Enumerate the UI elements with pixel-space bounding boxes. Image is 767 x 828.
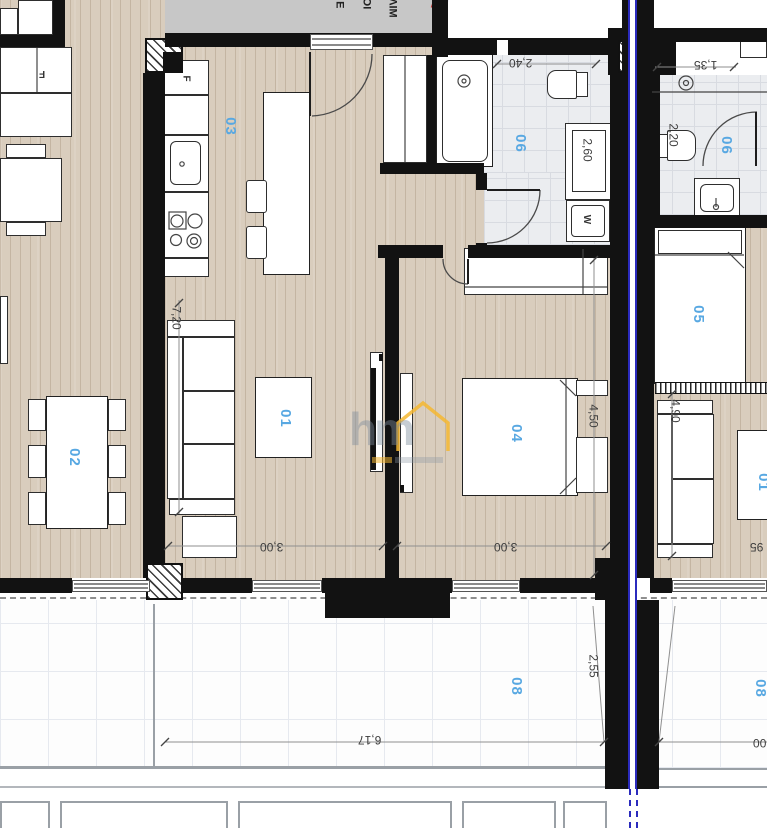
chair [28,399,46,431]
wall-hatched-band [655,382,767,394]
dresser [576,437,608,493]
balcony-edge-right-2 [659,786,767,788]
sofa-back [657,414,672,544]
sliding-door-handle [379,354,383,361]
sofa-seat [183,391,235,444]
table [0,158,62,222]
toilet-tank [576,72,588,97]
kitchen-counter [0,93,72,137]
bathtub-inner [442,60,488,162]
wall [610,38,622,578]
wall [476,173,487,190]
chair [28,445,46,478]
wall-bottom [650,578,672,593]
balcony-divider [153,604,155,767]
balcony-door-sill [252,580,322,592]
balcony-edge-2 [0,786,606,788]
wall [484,245,612,258]
sofa-seat [183,337,235,391]
chair [108,399,126,431]
column-hatched [146,563,183,600]
stairwell-line: ◄Ε [333,0,346,18]
cabinet [163,95,209,135]
structural-axis-dashed [629,789,631,828]
floor-plan: 01 02 03 04 05 06 06 08 08 01 7,20 2,40 … [0,0,767,828]
sofa-seat [183,444,235,499]
sofa-armrest [657,544,713,558]
window-sill [72,580,150,592]
balcony-door-sill [452,580,520,592]
wall [0,578,72,593]
watermark-tagline-accent [372,457,392,463]
wall [468,245,484,258]
cabinet [18,0,53,35]
chimney-box [325,585,450,618]
watermark-tagline [395,457,443,463]
chair [6,222,46,236]
stool [246,180,267,213]
closet [383,55,427,163]
sink-basin [700,184,734,212]
wall-top [165,33,448,47]
sliding-door-handle [400,485,404,492]
wall [380,163,484,174]
railing-panel [563,801,607,828]
window-sill [672,580,767,592]
chair [108,492,126,525]
wall [53,0,65,35]
railing-panel [0,801,50,828]
wall [648,73,660,225]
wall [378,245,443,258]
sofa-partial [0,296,8,364]
kitchen-sink-basin [170,141,201,185]
balcony-edge-right [659,768,767,770]
stairwell-line: ΚΛΙΜ [386,0,399,18]
wall [650,215,767,228]
stool [246,226,267,259]
chair [28,492,46,525]
wall [676,28,767,42]
sofa-seat [672,479,714,544]
wall [432,0,448,57]
pillow [658,230,742,254]
kitchen-island [263,92,310,275]
exterior-top-gap [448,0,610,38]
cabinet [163,258,209,277]
nightstand [576,380,608,396]
tv-cabinet [182,516,237,558]
railing-panel [60,801,228,828]
wall [0,35,65,47]
window-gap [497,40,508,55]
structural-axis-line [628,0,637,789]
stove [163,192,209,258]
railing-panel [462,801,556,828]
chair [6,144,46,158]
watermark-logo: hm [349,402,412,456]
stairwell-line: ΚΟΙ [359,0,372,18]
entrance-threshold [310,34,373,50]
cabinet [0,8,18,35]
balcony-edge [0,766,606,769]
chair [108,445,126,478]
party-wall-left [143,73,165,578]
sofa-armrest [657,400,713,414]
kitchen-counter [0,47,72,93]
sofa-back [167,337,183,499]
sofa-seat [672,414,714,479]
sofa-armrest [169,499,235,515]
wall-bath-top [448,38,610,55]
railing-panel [238,801,452,828]
wall [427,55,436,163]
structural-axis-dashed [636,789,638,828]
toilet-bowl [547,70,577,99]
column-core [163,52,183,73]
